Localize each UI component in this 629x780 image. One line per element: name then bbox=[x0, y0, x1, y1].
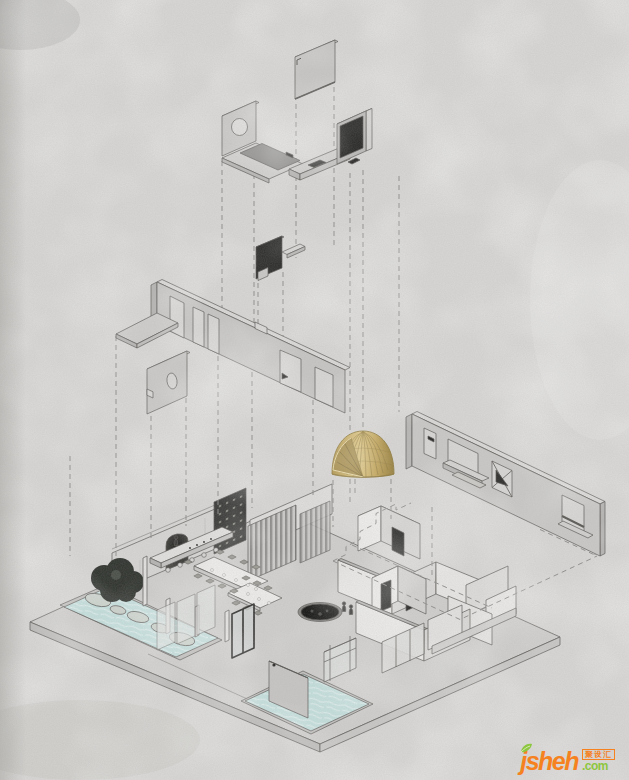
exploded-axon-diagram bbox=[0, 0, 629, 780]
watermark: jsheh 聚设汇 .com bbox=[520, 740, 615, 772]
person-figure bbox=[174, 536, 177, 546]
circle-cutout bbox=[232, 119, 248, 136]
round-pit bbox=[298, 603, 342, 622]
person-figure bbox=[342, 602, 345, 612]
architectural-diagram-image: jsheh 聚设汇 .com bbox=[0, 0, 629, 780]
watermark-tld: .com bbox=[582, 761, 608, 772]
dark-framed-door bbox=[232, 604, 254, 658]
leaf-icon bbox=[520, 740, 534, 754]
person-figure bbox=[349, 605, 352, 615]
